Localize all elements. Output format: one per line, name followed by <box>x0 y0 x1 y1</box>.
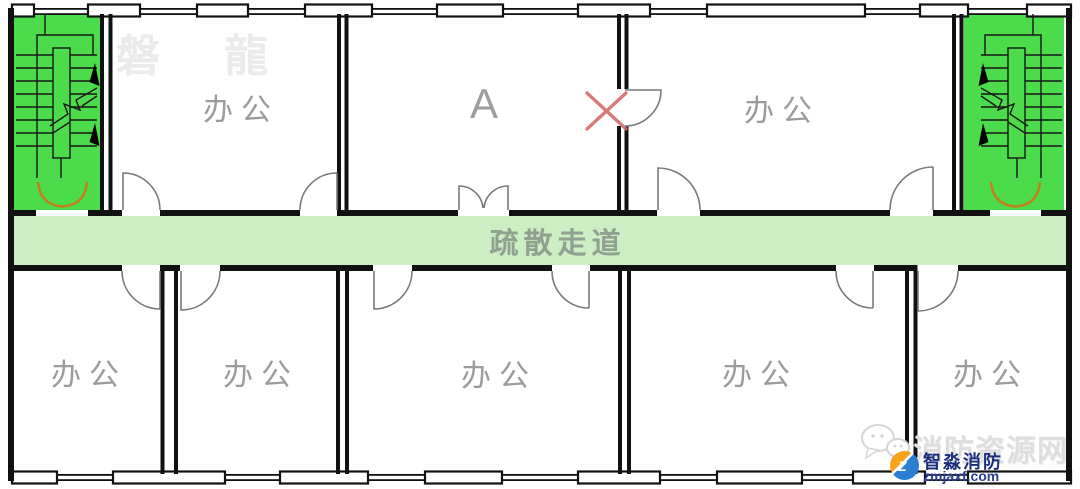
door-arc <box>836 271 873 308</box>
room-label-bottom-1: 办公 <box>43 350 127 394</box>
brand-site: zmjaxf.com <box>923 468 999 484</box>
blocked-door-x-icon <box>587 93 626 129</box>
brand-logo: Z 智淼消防 zmjaxf.com <box>890 448 1080 486</box>
brand-logo-initial: Z <box>898 458 907 474</box>
room-label-bottom-3: 办公 <box>453 351 537 395</box>
door-arc <box>181 271 220 310</box>
brand-logo-icon: Z <box>890 451 919 480</box>
room-label-bottom-2: 办公 <box>215 350 299 394</box>
room-label-a: A <box>470 80 498 128</box>
blocked-door-arc <box>625 90 661 126</box>
door-arc <box>890 167 933 210</box>
corridor-label: 疏散走道 <box>484 220 625 262</box>
room-label-bottom-5: 办公 <box>945 350 1029 394</box>
stairwell-doors <box>38 182 1040 207</box>
watermark-panlong: 磐 龍 <box>116 20 294 84</box>
door-arc <box>552 271 589 308</box>
door-arc <box>123 173 160 210</box>
room-label-top-right: 办公 <box>736 86 820 130</box>
double-door-arc <box>459 186 508 210</box>
door-arc <box>122 271 160 309</box>
room-label-top-left: 办公 <box>195 85 279 129</box>
door-arc <box>300 173 337 210</box>
office-floor-plan: 办公 A 办公 办公 办公 办公 办公 办公 疏散走道 磐 龍 消防资源网 Z … <box>0 0 1080 489</box>
door-arc <box>918 271 958 311</box>
door-arc <box>374 271 412 309</box>
room-label-bottom-4: 办公 <box>714 350 798 394</box>
door-arc <box>658 168 700 210</box>
